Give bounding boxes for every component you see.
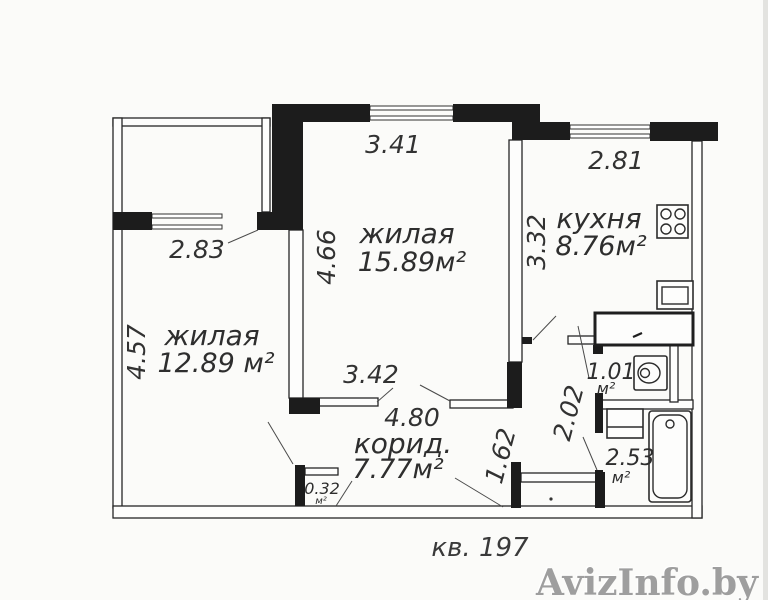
watermark: AvizInfo.by — [535, 562, 759, 600]
dim-living-main-bottom: 3.42 — [343, 360, 399, 389]
scan-edge-artifact — [763, 0, 768, 600]
stove-icon — [657, 205, 688, 238]
room-living-main-area: 15.89м² — [358, 247, 467, 278]
dim-living-main-height: 4.66 — [312, 229, 341, 285]
dim-kitchen-width: 2.81 — [588, 146, 644, 175]
room-kitchen-area: 8.76м² — [555, 231, 646, 262]
room-corridor-area: 7.77м² — [352, 454, 443, 485]
floor-plan-page: 3.41 2.81 2.83 4.66 3.32 4.57 3.42 4.80 … — [0, 0, 768, 600]
dim-living-main-width: 3.41 — [365, 130, 421, 159]
room-living-main-name: жилая — [358, 217, 454, 250]
apartment-number-label: кв. 197 — [431, 533, 529, 563]
kitchen-sink-icon — [657, 281, 693, 309]
room-bathroom-unit: м² — [612, 468, 631, 487]
room-closet-unit: м² — [315, 496, 327, 507]
room-wc-unit: м² — [597, 379, 616, 398]
vent-cabinet-block — [595, 313, 693, 345]
toilet-icon — [634, 356, 667, 390]
dim-living-second-height: 4.57 — [122, 324, 151, 380]
washbasin-icon — [607, 409, 643, 438]
dim-living-second-window: 2.83 — [169, 235, 225, 264]
bathtub-icon — [649, 411, 691, 502]
floor-plan-drawing: 3.41 2.81 2.83 4.66 3.32 4.57 3.42 4.80 … — [0, 0, 768, 600]
room-living-second-area: 12.89 м² — [157, 348, 274, 379]
dim-kitchen-height: 3.32 — [522, 214, 551, 270]
